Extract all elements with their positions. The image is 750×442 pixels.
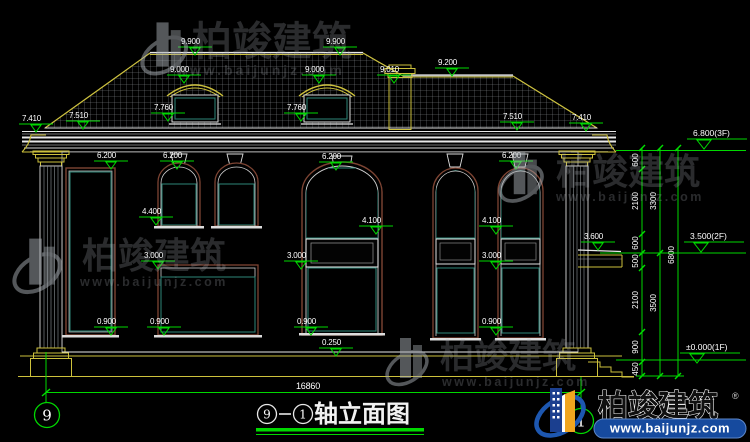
logo-tower-white (562, 394, 565, 432)
dim-chain-label: 3500 (649, 294, 658, 312)
window-arch-pair (154, 163, 262, 229)
axis-number: 9 (42, 407, 52, 425)
svg-text:4.400: 4.400 (142, 207, 162, 216)
level-mark: 3.500(2F) (684, 231, 744, 252)
svg-text:0.900: 0.900 (97, 317, 117, 326)
svg-text:0.900: 0.900 (297, 317, 317, 326)
watermark-brand: 柏竣建筑 (440, 337, 576, 376)
watermark-brand: 柏竣建筑 (556, 151, 700, 192)
svg-text:3.600: 3.600 (584, 232, 604, 241)
title-text: 轴立面图 (314, 400, 410, 428)
svg-text:7.410: 7.410 (572, 113, 592, 122)
window-center-arch (299, 162, 385, 336)
dim-chain-label: 6800 (667, 246, 676, 264)
elevation-drawing: 9.9009.9009.0009.0009.0109.2007.7607.760… (0, 0, 750, 442)
axis-bubble-left: 9 (35, 403, 60, 428)
svg-text:7.760: 7.760 (154, 103, 174, 112)
svg-text:7.510: 7.510 (503, 112, 523, 121)
watermark-url: www.baijunjz.com (441, 375, 590, 389)
watermark-url: www.baijunjz.com (79, 275, 228, 289)
watermark-url: www.baijunjz.com (175, 62, 345, 78)
svg-text:±0.000(1F): ±0.000(1F) (686, 342, 728, 352)
watermark-brand: 柏竣建筑 (192, 20, 352, 64)
watermark-brand: 柏竣建筑 (82, 235, 226, 276)
elevation-mark: 9.200 (435, 58, 469, 76)
svg-text:3.000: 3.000 (287, 251, 307, 260)
window-narrow-arch-1 (430, 168, 481, 341)
svg-text:0.900: 0.900 (150, 317, 170, 326)
dim-chain-label: 500 (631, 254, 640, 268)
watermark-bottom: 柏竣建筑 www.baijunjz.com (381, 337, 590, 391)
svg-text:6.200: 6.200 (97, 151, 117, 160)
watermark-url: www.baijunjz.com (555, 190, 704, 204)
svg-text:7.760: 7.760 (287, 103, 307, 112)
dim-chain-label: 900 (631, 340, 640, 354)
dim-chain-label: 600 (631, 236, 640, 250)
svg-text:3.000: 3.000 (482, 251, 502, 260)
title-axis-a: 9 (263, 408, 271, 422)
cornice (22, 132, 616, 153)
svg-text:7.410: 7.410 (22, 114, 42, 123)
drawing-title: 9 1 轴立面图 (256, 400, 424, 435)
logo-reg-mark: ® (732, 391, 739, 401)
dim-chain-label: 2100 (631, 291, 640, 309)
svg-text:4.100: 4.100 (482, 216, 502, 225)
svg-text:9.200: 9.200 (438, 58, 458, 67)
elevation-mark: 6.200 (94, 151, 128, 169)
dim-chain-label: 450 (631, 362, 640, 376)
svg-text:9.010: 9.010 (380, 65, 400, 74)
watermark-top: 柏竣建筑 www.baijunjz.com (136, 20, 352, 81)
entry-steps (588, 362, 634, 377)
svg-text:3.500(2F): 3.500(2F) (690, 231, 727, 241)
title-underline-thick (256, 428, 424, 432)
logo-tower-orange (565, 390, 575, 432)
svg-text:7.510: 7.510 (69, 111, 89, 120)
logo-brand-text: 柏竣建筑 (598, 389, 718, 423)
total-width-label: 16860 (296, 381, 320, 391)
logo-url-text: www.baijunjz.com (609, 421, 730, 436)
cad-canvas: 9.9009.9009.0009.0009.0109.2007.7607.760… (0, 0, 750, 442)
level-mark: 6.800(3F) (687, 128, 747, 149)
svg-text:0.250: 0.250 (322, 338, 342, 347)
title-axis-b: 1 (299, 408, 307, 422)
svg-text:0.900: 0.900 (482, 317, 502, 326)
window-sill (62, 335, 119, 338)
brand-logo: 柏竣建筑 ® www.baijunjz.com (529, 388, 746, 442)
elevation-mark: 7.410 (19, 114, 53, 132)
svg-text:6.800(3F): 6.800(3F) (693, 128, 730, 138)
svg-text:6.200: 6.200 (163, 151, 183, 160)
logo-tower-blue (550, 388, 562, 432)
elevation-mark: 0.250 (319, 338, 353, 356)
svg-text:4.100: 4.100 (362, 216, 382, 225)
svg-text:6.200: 6.200 (322, 152, 342, 161)
